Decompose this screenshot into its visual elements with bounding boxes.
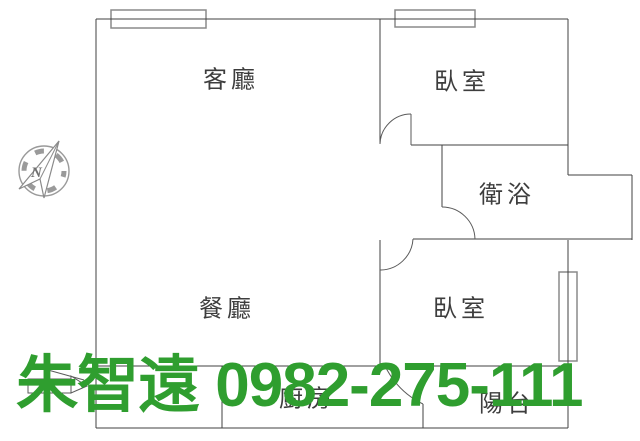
room-label-bedroom-top: 臥室 [434,62,490,97]
room-label-dining-room: 餐廳 [199,289,255,324]
room-label-living-room: 客廳 [203,60,259,95]
compass-icon: N [19,141,69,198]
room-label-bathroom: 衛浴 [479,175,535,210]
watermark-agent-name: 朱智遠 [16,351,199,420]
compass-north-letter: N [30,165,43,181]
watermark-phone-number: 0982-275-111 [215,351,582,420]
floor-plan: N 客廳 臥室 衛浴 餐廳 臥室 廚房 陽台 朱智遠 0982-275-111 [0,0,640,441]
room-label-bedroom-bottom: 臥室 [433,289,489,324]
watermark-contact: 朱智遠 0982-275-111 [16,353,583,418]
